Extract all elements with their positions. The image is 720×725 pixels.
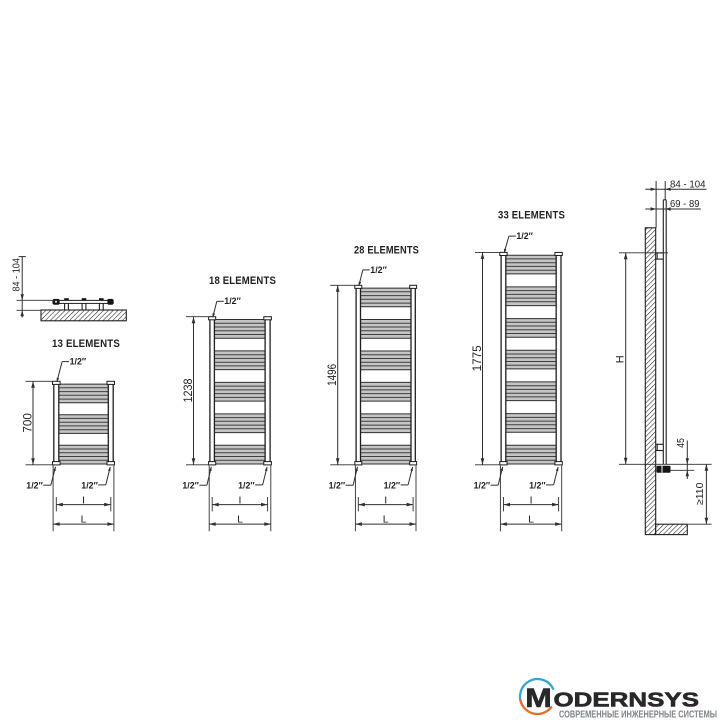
svg-text:L: L [528,514,534,526]
svg-text:L: L [237,514,243,526]
svg-text:I: I [384,494,387,506]
svg-text:I: I [82,494,85,506]
svg-text:1/2″: 1/2″ [370,265,387,276]
svg-text:СОВРЕМЕННЫЕ ИНЖЕНЕРНЫЕ СИСТЕМЫ: СОВРЕМЕННЫЕ ИНЖЕНЕРНЫЕ СИСТЕМЫ [559,709,717,720]
svg-text:1/2″: 1/2″ [529,480,546,491]
svg-text:45: 45 [676,438,687,448]
svg-text:13 ELEMENTS: 13 ELEMENTS [52,338,120,350]
svg-text:1/2″: 1/2″ [182,481,199,492]
svg-text:1/2″: 1/2″ [224,296,241,307]
svg-text:L: L [81,514,87,526]
svg-text:M: M [525,683,552,713]
svg-text:I: I [530,494,533,506]
svg-text:I: I [239,494,242,506]
svg-text:84 - 104: 84 - 104 [670,179,706,190]
svg-text:1496: 1496 [325,363,339,385]
svg-text:1/2″: 1/2″ [329,481,346,492]
svg-text:69 - 89: 69 - 89 [670,199,700,210]
svg-text:1/2″: 1/2″ [81,480,98,491]
svg-text:1238: 1238 [181,378,195,402]
svg-text:18 ELEMENTS: 18 ELEMENTS [209,275,276,287]
svg-text:33 ELEMENTS: 33 ELEMENTS [498,210,565,222]
svg-text:700: 700 [21,413,35,433]
svg-text:1/2″: 1/2″ [516,231,533,242]
svg-text:84 - 104: 84 - 104 [11,258,22,292]
svg-text:28 ELEMENTS: 28 ELEMENTS [354,245,419,257]
svg-text:1/2″: 1/2″ [474,481,491,492]
svg-text:≥110: ≥110 [694,482,706,505]
svg-text:1/2″: 1/2″ [26,481,43,492]
svg-text:1/2″: 1/2″ [238,480,255,491]
svg-text:1775: 1775 [470,345,484,371]
svg-text:1/2″: 1/2″ [70,357,87,368]
svg-text:L: L [383,514,389,526]
svg-text:1/2″: 1/2″ [384,480,401,491]
svg-text:H: H [615,355,627,363]
